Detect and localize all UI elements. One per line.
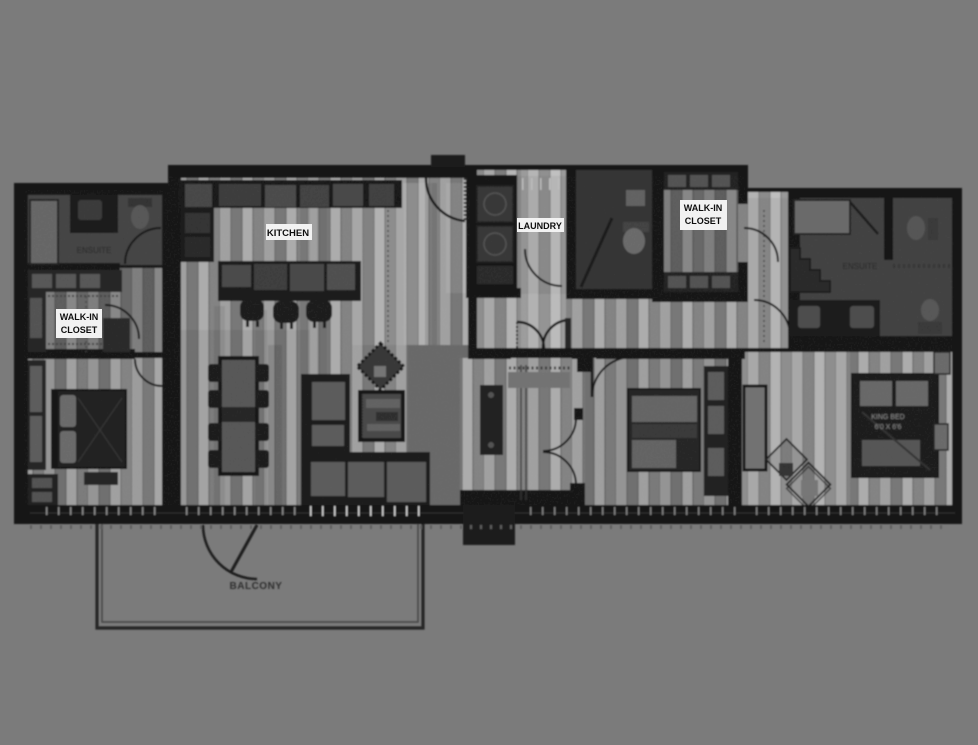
svg-text:BALCONY: BALCONY: [230, 581, 283, 592]
svg-text:WALK-IN: WALK-IN: [60, 312, 99, 322]
svg-text:KITCHEN: KITCHEN: [267, 228, 309, 239]
svg-text:CLOSET: CLOSET: [685, 216, 722, 226]
svg-text:WALK-IN: WALK-IN: [684, 203, 723, 213]
svg-text:LAUNDRY: LAUNDRY: [518, 221, 562, 231]
svg-text:CLOSET: CLOSET: [61, 325, 98, 335]
